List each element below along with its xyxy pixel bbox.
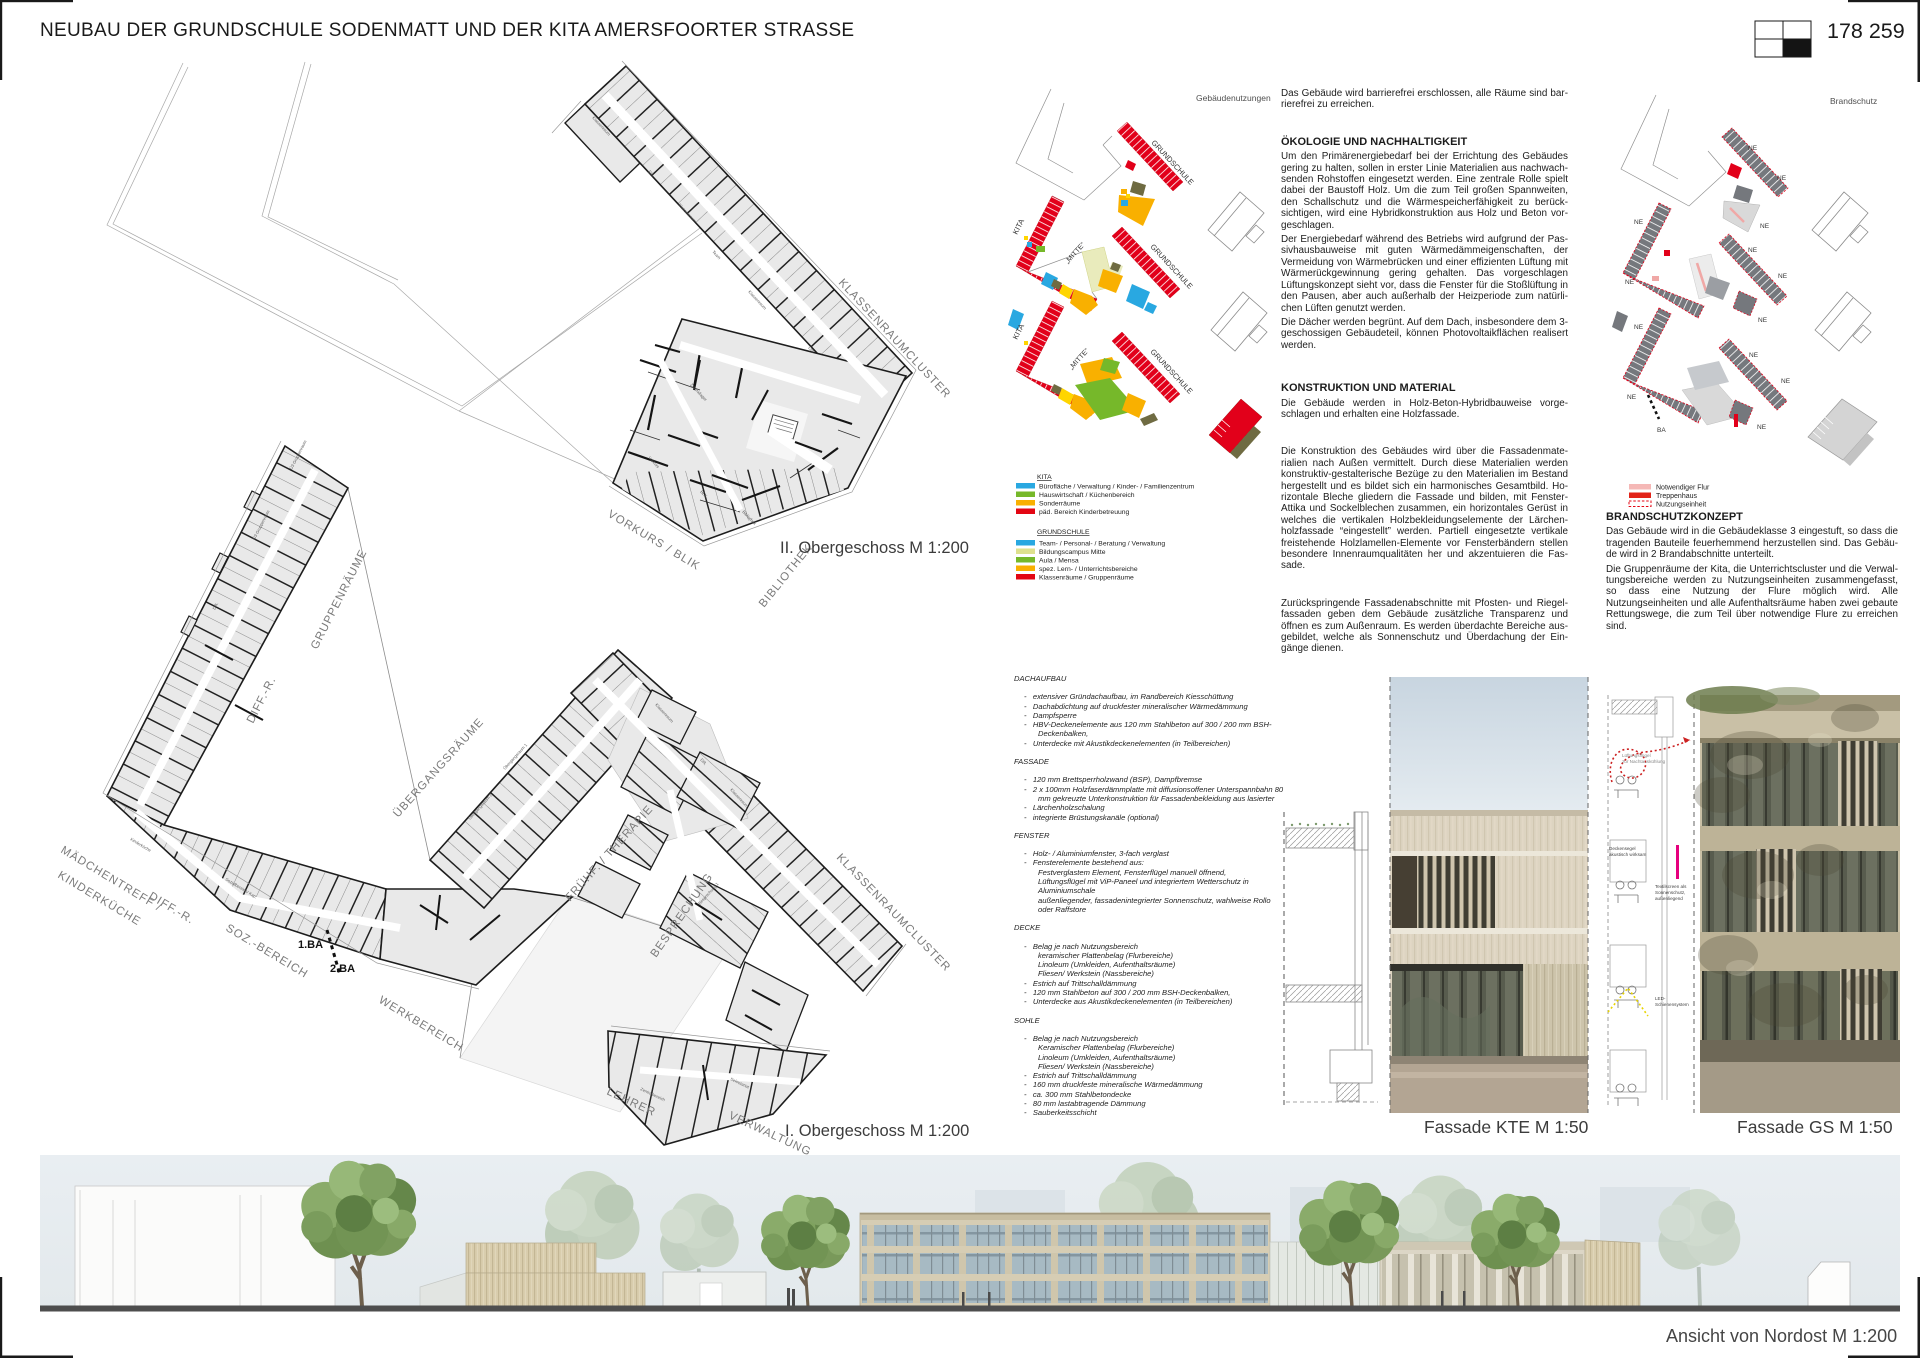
svg-text:2.BA: 2.BA: [330, 963, 355, 975]
svg-text:akustisch wirksam: akustisch wirksam: [1609, 852, 1646, 857]
svg-text:Aula / Mensa: Aula / Mensa: [1039, 558, 1079, 565]
svg-text:NE: NE: [1781, 378, 1791, 385]
svg-text:NE: NE: [1749, 352, 1759, 359]
svg-text:Bildungscampus Mitte: Bildungscampus Mitte: [1039, 549, 1106, 556]
svg-text:NEUBAU DER GRUNDSCHULE SODENMA: NEUBAU DER GRUNDSCHULE SODENMATT UND DER…: [40, 20, 854, 41]
svg-text:Ansicht von Nordost M 1:200: Ansicht von Nordost M 1:200: [1666, 1326, 1897, 1346]
svg-text:I. Obergeschoss M 1:200: I. Obergeschoss M 1:200: [785, 1122, 969, 1140]
svg-text:Klassenräume / Gruppenräume: Klassenräume / Gruppenräume: [1039, 575, 1134, 582]
svg-text:Sonnenschutz,: Sonnenschutz,: [1655, 890, 1685, 895]
svg-text:Kinderküche: Kinderküche: [129, 837, 152, 854]
svg-text:NE: NE: [1748, 247, 1758, 254]
svg-text:Lüftungsflügel: Lüftungsflügel: [1622, 753, 1651, 758]
svg-text:NE: NE: [1634, 219, 1644, 226]
svg-text:spez. Lern- / Unterrichtsberei: spez. Lern- / Unterrichtsbereiche: [1039, 566, 1138, 573]
svg-text:NE: NE: [1634, 324, 1644, 331]
svg-text:Fassade GS M 1:50: Fassade GS M 1:50: [1737, 1117, 1893, 1137]
svg-text:päd. Bereich Kinderbetreuung: päd. Bereich Kinderbetreuung: [1039, 509, 1130, 516]
svg-text:KITA: KITA: [1037, 474, 1052, 481]
svg-text:DIFF.-R.: DIFF.-R.: [245, 675, 279, 726]
svg-text:II. Obergeschoss M 1:200: II. Obergeschoss M 1:200: [780, 539, 969, 557]
svg-text:Fassade KTE M 1:50: Fassade KTE M 1:50: [1424, 1117, 1589, 1137]
svg-text:178 259: 178 259: [1827, 19, 1905, 43]
svg-text:NE: NE: [1778, 273, 1788, 280]
svg-text:ÜBERGANGSRÄUME: ÜBERGANGSRÄUME: [391, 716, 486, 820]
svg-text:GRUPPENRÄUME: GRUPPENRÄUME: [309, 548, 370, 652]
svg-text:NE: NE: [1777, 175, 1787, 182]
svg-text:KITA: KITA: [1011, 217, 1026, 235]
svg-text:Team- / Personal- / Beratung /: Team- / Personal- / Beratung / Verwaltun…: [1039, 541, 1165, 548]
svg-text:Hauswirtschaft / Küchenbereich: Hauswirtschaft / Küchenbereich: [1039, 492, 1135, 499]
svg-text:Team: Team: [711, 249, 722, 260]
svg-text:zur Nachtauskühlung: zur Nachtauskühlung: [1622, 759, 1666, 764]
svg-text:NE: NE: [1625, 279, 1635, 286]
svg-text:Nutzungseinheit: Nutzungseinheit: [1656, 502, 1706, 509]
svg-text:Gebäudenutzungen: Gebäudenutzungen: [1196, 93, 1271, 103]
svg-text:NE: NE: [1758, 317, 1768, 324]
svg-text:Brandschutz: Brandschutz: [1830, 96, 1877, 106]
svg-text:NE: NE: [1627, 394, 1637, 401]
svg-text:Notwendiger Flur: Notwendiger Flur: [1656, 485, 1710, 492]
svg-text:Treppenhaus: Treppenhaus: [1656, 493, 1697, 500]
svg-text:Sonderräume: Sonderräume: [1039, 501, 1080, 508]
svg-text:Deckensegel: Deckensegel: [1609, 846, 1636, 851]
svg-text:NE: NE: [1757, 424, 1767, 431]
svg-text:BA: BA: [1657, 427, 1666, 434]
svg-text:Schienensystem: Schienensystem: [1655, 1002, 1689, 1007]
svg-text:Bürofläche / Verwaltung / Kind: Bürofläche / Verwaltung / Kinder- / Fami…: [1039, 484, 1195, 491]
svg-text:außenliegend: außenliegend: [1655, 896, 1683, 901]
svg-text:NE: NE: [1760, 223, 1770, 230]
svg-text:LED-: LED-: [1655, 996, 1666, 1001]
svg-text:WERKBEREICH: WERKBEREICH: [376, 994, 465, 1054]
svg-text:GRUNDSCHULE: GRUNDSCHULE: [1037, 529, 1090, 536]
svg-text:Textilscreen als: Textilscreen als: [1655, 884, 1687, 889]
svg-text:1.BA: 1.BA: [298, 939, 323, 951]
svg-text:NE: NE: [1748, 145, 1758, 152]
